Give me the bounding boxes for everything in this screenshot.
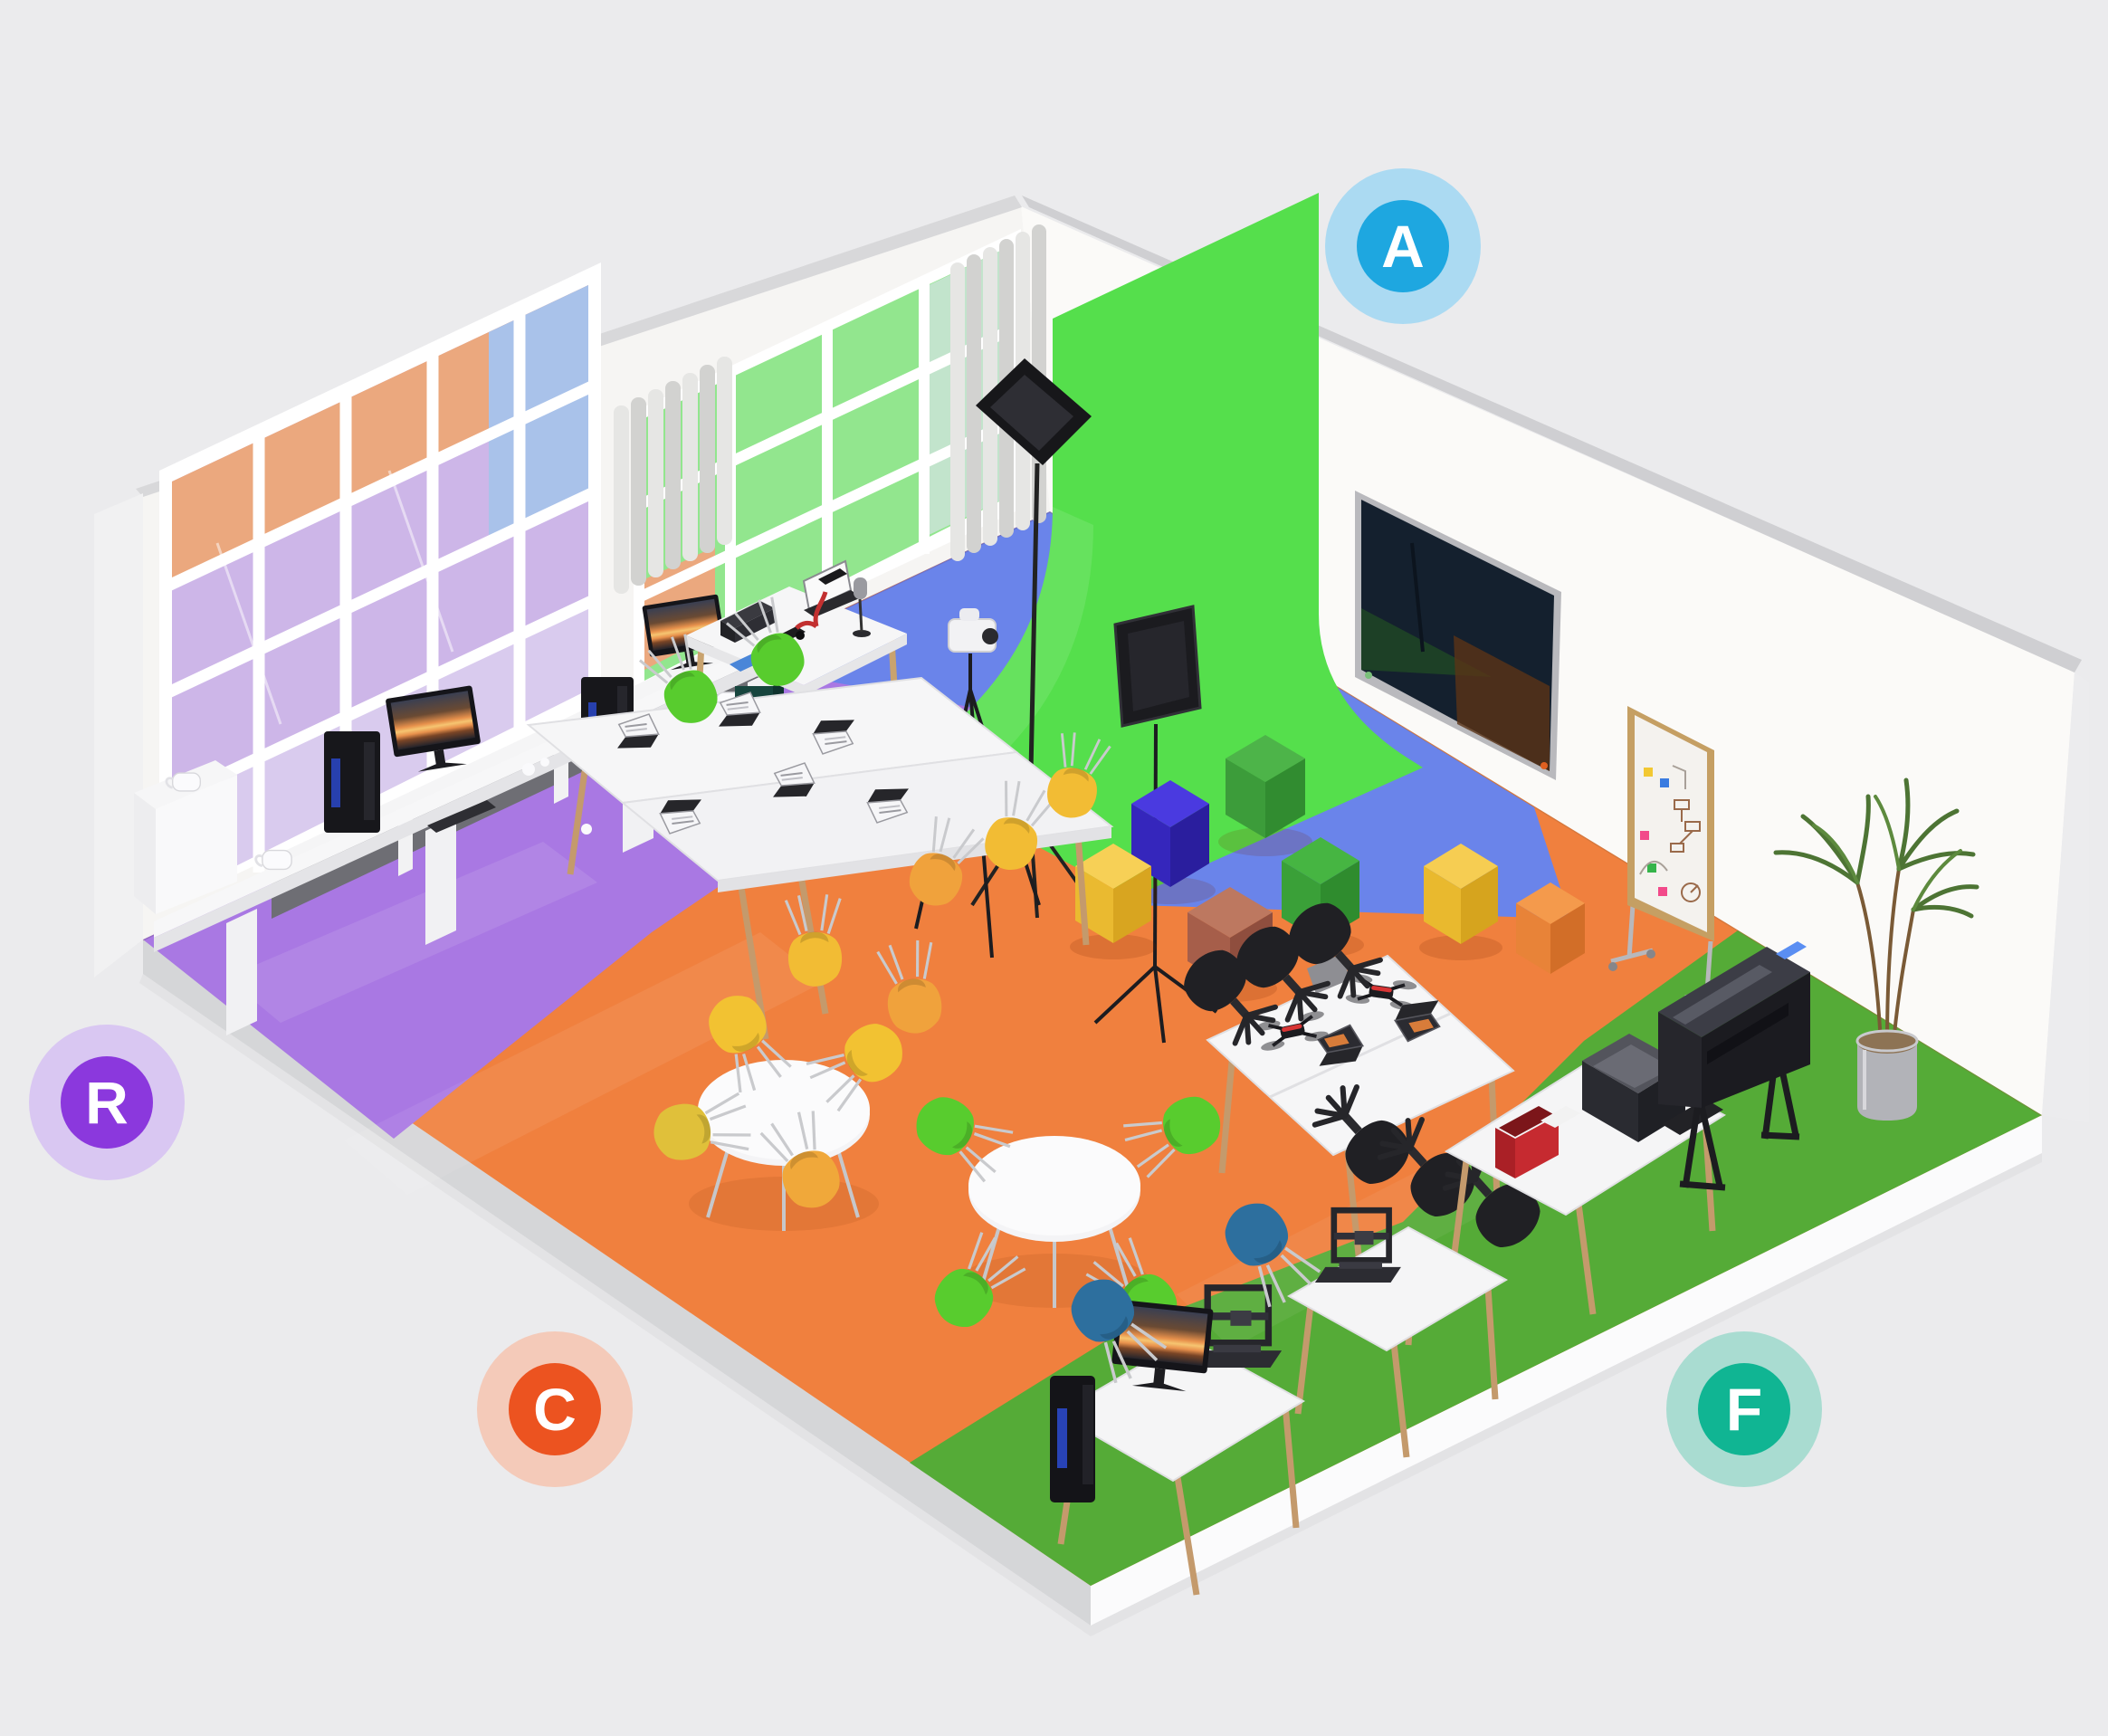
zone-marker-c-letter: C xyxy=(533,1376,577,1443)
isometric-makerspace-illustration: A R C F xyxy=(0,0,2108,1736)
zone-marker-c[interactable]: C xyxy=(477,1331,633,1487)
zone-marker-r-letter: R xyxy=(85,1069,129,1136)
microphone xyxy=(854,577,867,599)
zone-marker-a-letter: A xyxy=(1381,213,1425,280)
zone-marker-f-letter: F xyxy=(1726,1376,1762,1443)
zone-marker-r[interactable]: R xyxy=(29,1025,185,1180)
zone-marker-a[interactable]: A xyxy=(1325,168,1481,324)
zone-marker-f[interactable]: F xyxy=(1666,1331,1822,1487)
pc-tower xyxy=(324,731,380,833)
pc-tower xyxy=(1050,1376,1095,1502)
